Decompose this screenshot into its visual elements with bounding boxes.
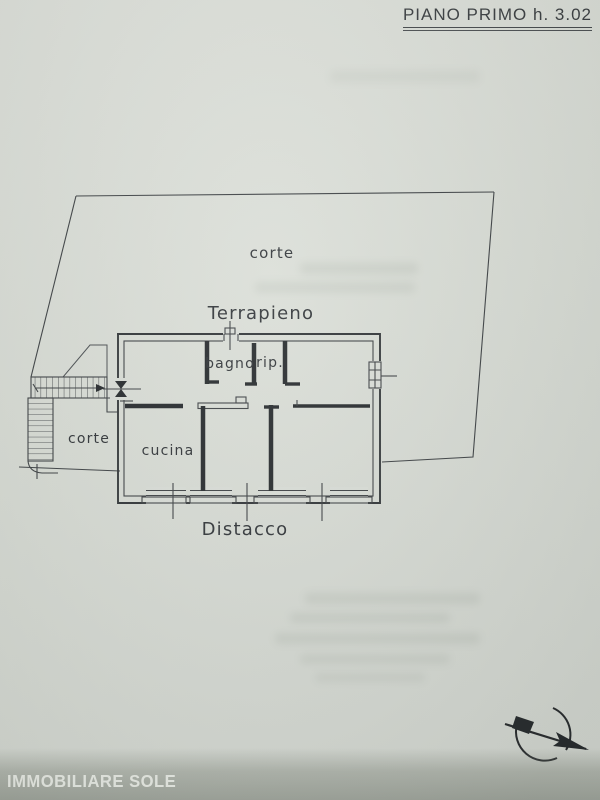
label-bagno: bagno <box>205 356 255 372</box>
label-terrapieno: Terrapieno <box>207 303 314 324</box>
site-boundary <box>19 192 494 471</box>
label-corte-lower: corte <box>68 431 110 447</box>
scanned-floorplan-page: corte Terrapieno bagno rip. cucina corte… <box>0 0 600 800</box>
page-title: PIANO PRIMO h. 3.02 <box>403 5 592 31</box>
entrance-door <box>103 381 141 397</box>
label-corte-upper: corte <box>250 244 295 262</box>
staircase <box>28 345 118 479</box>
watermark-text: IMMOBILIARE SOLE <box>7 771 176 792</box>
floorplan-drawing: corte Terrapieno bagno rip. cucina corte… <box>0 0 600 800</box>
page-title-text: PIANO PRIMO h. 3.02 <box>403 5 592 28</box>
label-rip: rip. <box>256 355 284 371</box>
label-distacco: Distacco <box>202 519 289 540</box>
label-cucina: cucina <box>142 443 195 459</box>
